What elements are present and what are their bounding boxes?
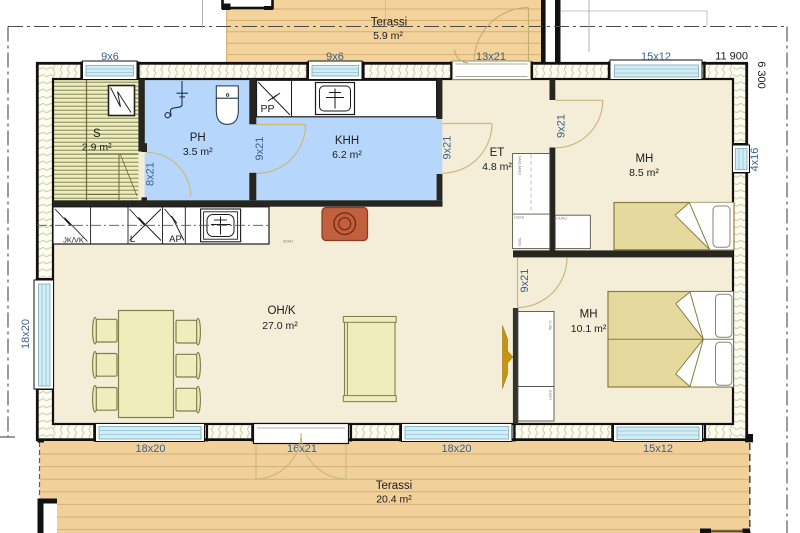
svg-text:20.4 m²: 20.4 m² [376,494,412,506]
svg-text:13x21: 13x21 [476,51,506,63]
svg-text:JK/VK: JK/VK [63,235,84,244]
svg-text:6.2 m²: 6.2 m² [332,149,362,161]
svg-text:MH: MH [580,309,598,321]
svg-text:Terassi: Terassi [376,480,412,492]
svg-text:2.9 m²: 2.9 m² [82,142,112,154]
svg-text:LIUKU: LIUKU [557,217,568,221]
svg-text:9x6: 9x6 [326,51,344,63]
svg-text:9x21: 9x21 [556,114,568,138]
svg-text:18x20: 18x20 [20,319,32,349]
svg-text:4x16: 4x16 [749,148,761,172]
svg-text:OH/K: OH/K [267,305,295,317]
svg-text:3.5 m²: 3.5 m² [183,146,213,158]
svg-text:27.0 m²: 27.0 m² [262,320,298,332]
svg-text:5.9 m²: 5.9 m² [373,30,403,42]
svg-text:4.8 m²: 4.8 m² [482,161,512,173]
svg-text:PH: PH [190,132,206,144]
svg-text:10.1 m²: 10.1 m² [571,323,607,335]
svg-text:18x20: 18x20 [442,443,472,455]
svg-text:LIUKU: LIUKU [549,389,553,400]
svg-text:ET: ET [490,147,505,159]
svg-text:AP: AP [169,234,182,245]
svg-text:18x20: 18x20 [136,443,166,455]
svg-text:LIUKU: LIUKU [514,216,525,220]
svg-text:PP: PP [260,103,274,115]
svg-text:8x21: 8x21 [145,162,157,186]
svg-text:9x21: 9x21 [254,137,266,161]
svg-text:KHH: KHH [335,135,359,147]
svg-text:MH: MH [635,153,653,165]
svg-text:WK72: WK72 [549,320,553,330]
svg-text:S: S [93,128,101,140]
svg-text:6 300: 6 300 [755,61,767,89]
svg-text:9x21: 9x21 [442,136,454,160]
svg-text:8.5 m²: 8.5 m² [629,167,659,179]
svg-text:SDHH: SDHH [283,240,293,244]
svg-text:11 900: 11 900 [715,51,748,63]
svg-text:9x6: 9x6 [101,51,119,63]
svg-text:15x12: 15x12 [641,51,671,63]
svg-text:15x12: 15x12 [643,443,673,455]
svg-text:L: L [130,234,135,245]
svg-text:500S: 500S [518,238,522,247]
svg-text:9x21: 9x21 [519,269,531,293]
svg-text:NAULAKKO: NAULAKKO [518,156,522,175]
